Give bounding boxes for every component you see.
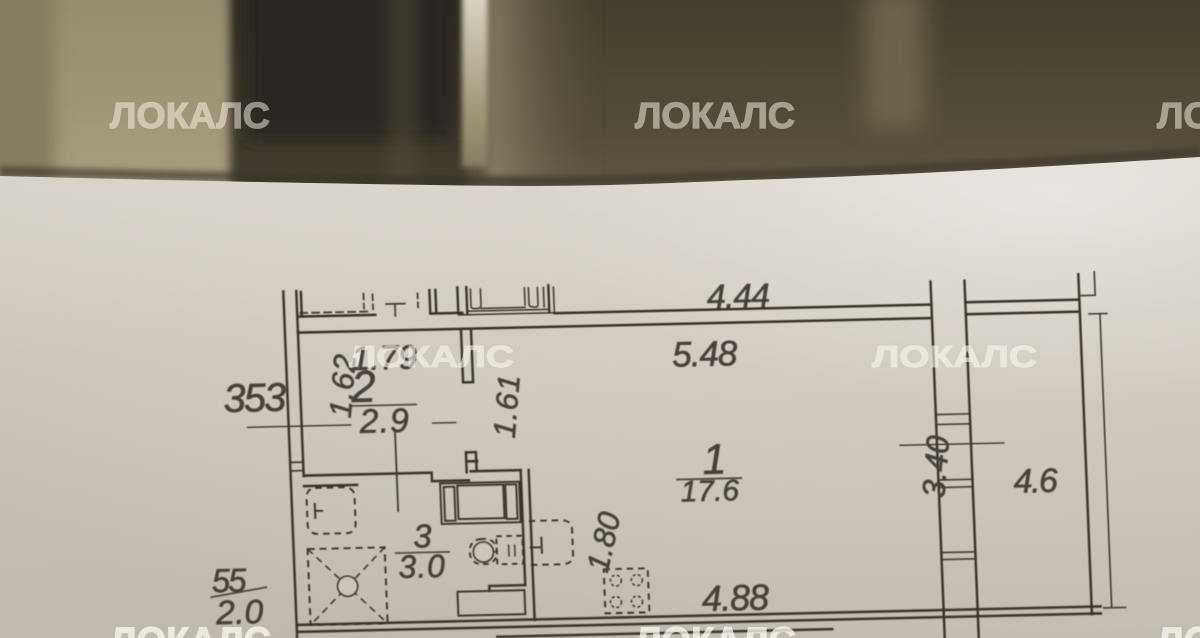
svg-text:4.44: 4.44 [706, 277, 770, 316]
svg-text:ЛОКАЛС: ЛОКАЛС [110, 620, 271, 638]
svg-text:4.88: 4.88 [701, 577, 770, 620]
svg-text:353: 353 [223, 375, 287, 420]
svg-text:5.48: 5.48 [671, 334, 738, 374]
svg-text:ЛОКАЛС: ЛОКАЛС [349, 339, 514, 374]
svg-text:1.61: 1.61 [487, 372, 527, 439]
svg-text:ЛОКАЛС: ЛОКАЛС [1157, 95, 1200, 136]
svg-text:ЛОКАЛС: ЛОКАЛС [635, 95, 795, 136]
svg-text:3.40: 3.40 [915, 434, 956, 500]
svg-text:ЛОКАЛС: ЛОКАЛС [635, 620, 796, 638]
svg-text:ЛОКАЛС: ЛОКАЛС [872, 339, 1037, 374]
svg-text:ЛОКАЛС: ЛОКАЛС [110, 95, 270, 136]
svg-text:17.6: 17.6 [680, 474, 740, 508]
svg-text:4.6: 4.6 [1013, 462, 1059, 501]
svg-text:ЛОКАЛС: ЛОКАЛС [1157, 620, 1200, 638]
svg-text:3.0: 3.0 [398, 548, 447, 585]
svg-text:2.9: 2.9 [358, 402, 411, 441]
